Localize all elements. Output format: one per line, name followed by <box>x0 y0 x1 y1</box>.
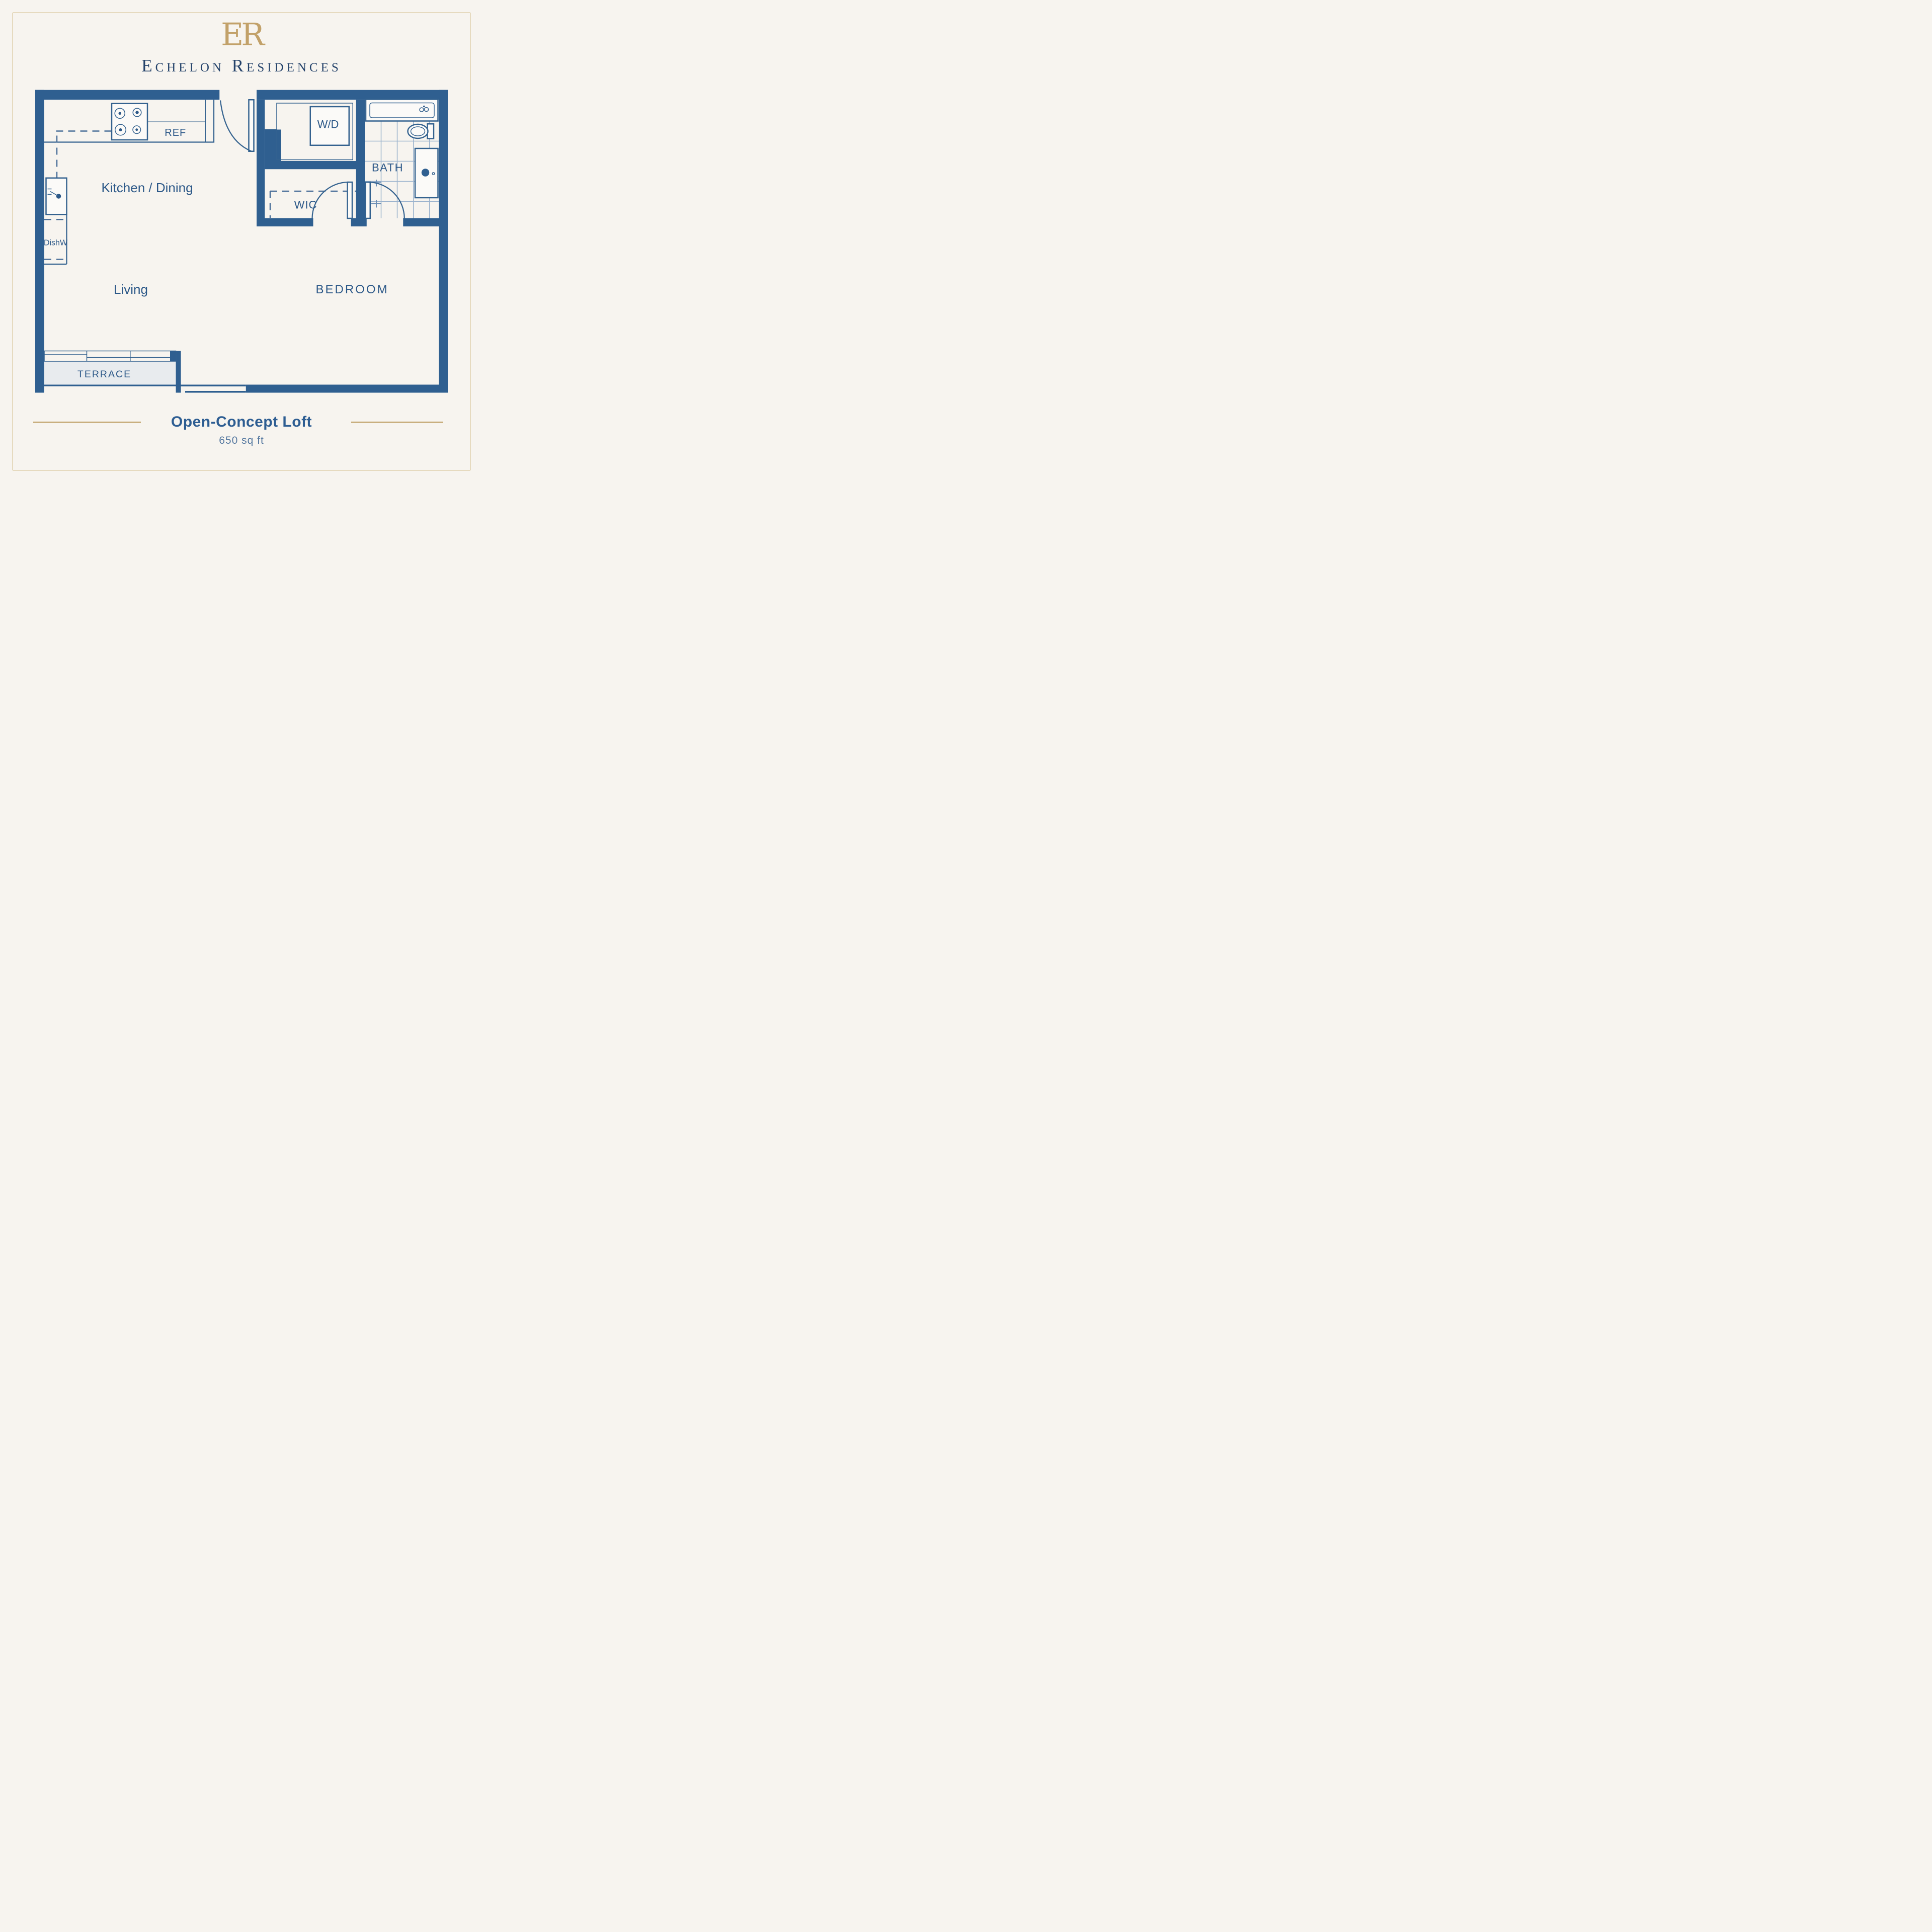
bedroom-label: BEDROOM <box>315 283 388 296</box>
washer-dryer-label: W/D <box>317 118 339 131</box>
wall-right <box>439 90 448 393</box>
bedroom-window-sill-top <box>181 385 246 387</box>
floor-plan: REF DishW Kitchen / Dining <box>0 0 483 483</box>
plan-area: 650 sq ft <box>0 435 483 447</box>
wall-top-right <box>257 90 448 100</box>
kitchen-area: REF DishW Kitchen / Dining <box>44 100 214 264</box>
wall-wd-stub <box>265 130 281 162</box>
bedroom-window-sill-bottom <box>185 391 246 393</box>
wall-bath-bottom <box>403 218 448 227</box>
entry-door-leaf <box>249 100 254 151</box>
bath-label: BATH <box>372 162 404 174</box>
wall-bath-left <box>356 100 365 226</box>
wall-wic-bottom-left <box>257 218 313 227</box>
wall-wd-left <box>257 100 265 226</box>
walls <box>35 90 448 393</box>
stove-icon <box>112 104 147 140</box>
refrigerator-label: REF <box>165 127 186 138</box>
kitchen-label: Kitchen / Dining <box>101 180 193 195</box>
sink-icon <box>46 178 67 215</box>
entry-door <box>220 100 254 151</box>
wall-top-left <box>35 90 219 100</box>
terrace-area: TERRACE <box>44 351 176 385</box>
dishwasher-label: DishW <box>44 239 68 248</box>
page-background: ER Echelon Residences <box>0 0 483 483</box>
bath-door-leaf <box>365 182 370 218</box>
wic-door-swing <box>312 182 349 218</box>
dishwasher-area: DishW <box>44 214 68 264</box>
bathroom: BATH <box>365 100 439 219</box>
wall-wd-bottom <box>265 161 356 169</box>
living-label: Living <box>114 282 148 297</box>
bath-door-swing <box>368 182 405 218</box>
sliding-door <box>44 351 176 362</box>
terrace-label: TERRACE <box>77 369 131 380</box>
plan-title: Open-Concept Loft <box>0 414 483 431</box>
terrace-railing <box>35 385 176 386</box>
wic-door-leaf <box>348 182 353 218</box>
terrace-right-wall <box>176 351 181 393</box>
vanity-icon <box>415 148 438 198</box>
wall-left <box>35 90 44 393</box>
wall-wic-bottom-mid <box>351 218 367 227</box>
entry-door-swing <box>220 101 252 151</box>
walk-in-closet: WIC <box>270 182 356 219</box>
wall-bottom <box>246 385 448 393</box>
bathtub-icon <box>366 100 438 121</box>
toilet-icon <box>408 124 434 138</box>
